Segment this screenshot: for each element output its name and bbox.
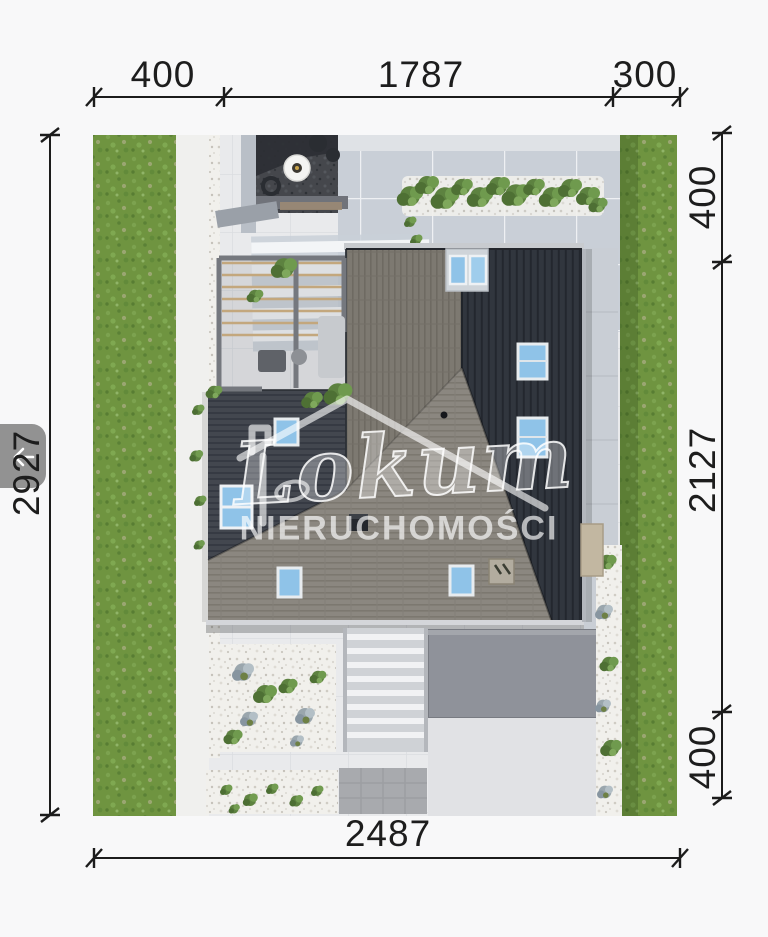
- gravel-bed-east: [595, 545, 622, 816]
- dim-right-top: 400: [682, 165, 724, 230]
- patio-table: [291, 349, 307, 365]
- skylight: [470, 256, 486, 284]
- roof-notch-windows: [446, 249, 488, 291]
- storage-box: [581, 524, 603, 576]
- skylight: [278, 568, 301, 597]
- lounge-chair: [258, 350, 286, 372]
- roof-hatch: [489, 559, 514, 584]
- skylight: [450, 256, 466, 284]
- entrance-stairs: [343, 628, 428, 752]
- site-plan-page: Lokum NIERUCHOMOŚCI 400 1787 300 2927 40…: [0, 0, 768, 937]
- skylight: [275, 419, 298, 445]
- site-plan-render: [0, 0, 768, 937]
- outdoor-sofa: [318, 316, 345, 378]
- dim-right-bottom: 400: [682, 725, 724, 790]
- driveway: [428, 718, 622, 816]
- dim-top-left: 400: [131, 54, 196, 96]
- dim-left: 2927: [6, 430, 48, 516]
- bird: [441, 412, 448, 419]
- lawn-left: [93, 135, 176, 816]
- skylight: [450, 566, 473, 595]
- dim-top-center: 1787: [378, 54, 464, 96]
- pergola: [206, 258, 353, 408]
- gravel-bed-bottom: [206, 770, 338, 814]
- gravel-bed-west: [212, 644, 336, 752]
- dim-right-middle: 2127: [682, 427, 724, 513]
- garage-flat-roof: [428, 630, 604, 718]
- dim-bottom: 2487: [345, 813, 431, 855]
- paved-pad-bottom: [339, 768, 427, 814]
- dim-top-right: 300: [613, 54, 678, 96]
